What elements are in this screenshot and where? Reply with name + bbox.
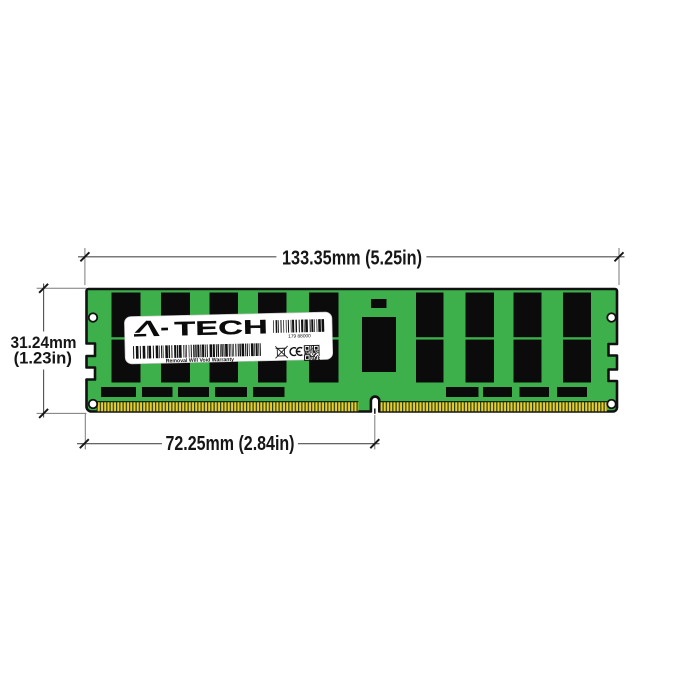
svg-text:72.25mm (2.84in): 72.25mm (2.84in) (166, 433, 295, 455)
svg-text:133.35mm (5.25in): 133.35mm (5.25in) (282, 247, 422, 269)
svg-text:TECH: TECH (174, 316, 268, 340)
svg-text:(1.23in): (1.23in) (14, 349, 72, 368)
svg-text:179 88000: 179 88000 (288, 333, 311, 340)
